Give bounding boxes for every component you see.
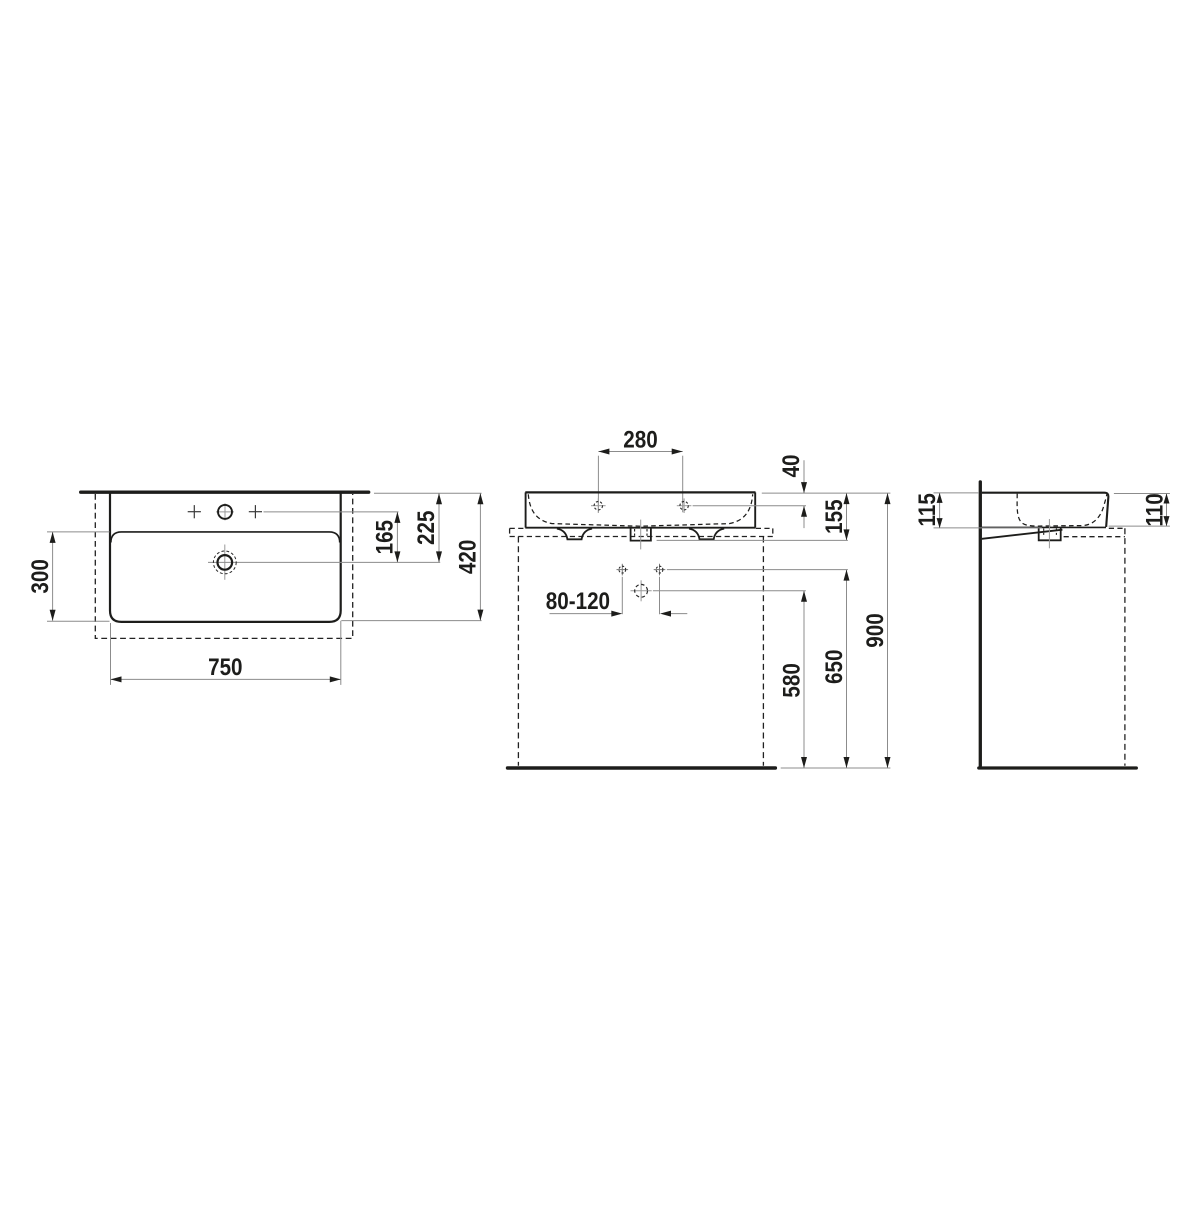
- svg-text:155: 155: [821, 499, 848, 533]
- svg-text:420: 420: [454, 540, 481, 574]
- svg-text:80-120: 80-120: [546, 588, 610, 615]
- svg-text:900: 900: [862, 613, 889, 647]
- svg-text:580: 580: [778, 663, 805, 697]
- svg-text:300: 300: [27, 559, 54, 593]
- svg-text:110: 110: [1141, 493, 1168, 526]
- svg-text:40: 40: [778, 455, 805, 478]
- svg-text:225: 225: [413, 511, 440, 545]
- svg-text:650: 650: [821, 650, 848, 684]
- svg-text:165: 165: [371, 520, 398, 554]
- svg-text:750: 750: [208, 654, 242, 681]
- svg-text:280: 280: [623, 427, 657, 454]
- svg-text:115: 115: [914, 493, 941, 526]
